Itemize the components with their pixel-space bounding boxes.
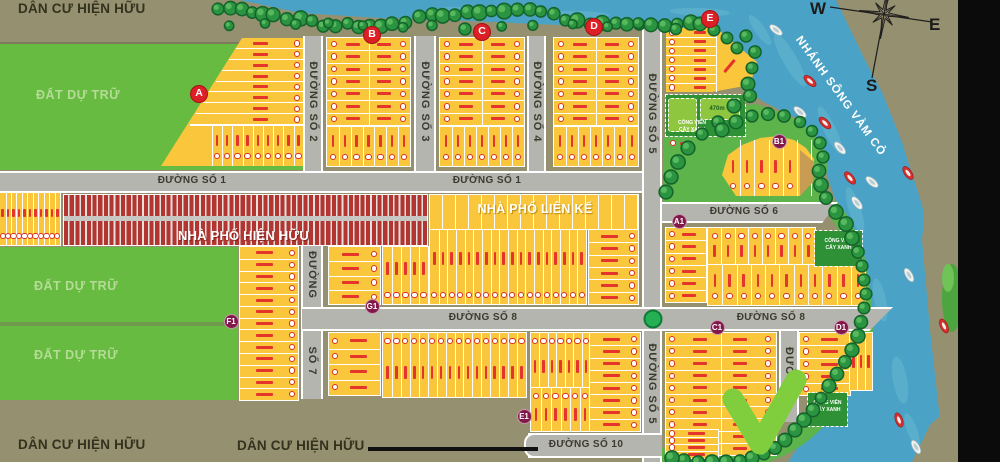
svg-text:W: W [810, 0, 827, 18]
svg-text:E: E [929, 15, 940, 34]
svg-text:S: S [866, 76, 877, 95]
